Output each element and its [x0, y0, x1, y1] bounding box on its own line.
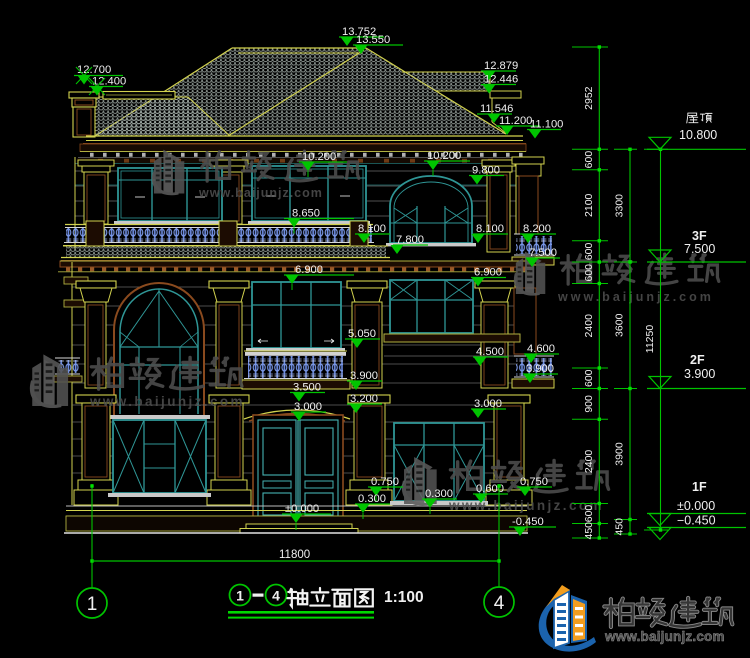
svg-text:2400: 2400 — [583, 450, 595, 474]
svg-text:www.baijunjz.com: www.baijunjz.com — [198, 186, 323, 200]
svg-text:13.550: 13.550 — [356, 34, 390, 46]
svg-text:1: 1 — [87, 594, 98, 615]
svg-text:−0.450: −0.450 — [677, 514, 716, 528]
svg-text:8.650: 8.650 — [292, 208, 320, 220]
svg-text:8.100: 8.100 — [476, 223, 504, 235]
svg-text:3.900: 3.900 — [526, 363, 554, 375]
svg-text:2400: 2400 — [583, 314, 595, 338]
svg-text:900: 900 — [583, 395, 595, 413]
svg-text:0.750: 0.750 — [371, 476, 399, 488]
svg-text:3.200: 3.200 — [350, 393, 378, 405]
svg-text:2952: 2952 — [583, 86, 595, 110]
svg-text:450: 450 — [614, 518, 626, 536]
svg-text:1:100: 1:100 — [384, 589, 424, 606]
svg-text:3.000: 3.000 — [294, 401, 322, 413]
svg-text:3.500: 3.500 — [293, 382, 321, 394]
svg-text:3.000: 3.000 — [474, 398, 502, 410]
svg-text:4.500: 4.500 — [476, 346, 504, 358]
svg-text:4: 4 — [272, 588, 280, 604]
svg-text:12.446: 12.446 — [484, 74, 518, 86]
svg-text:1: 1 — [236, 588, 244, 604]
svg-text:3.900: 3.900 — [350, 370, 378, 382]
svg-text:6.900: 6.900 — [474, 267, 502, 279]
svg-text:1F: 1F — [692, 480, 707, 494]
svg-text:8.100: 8.100 — [358, 223, 386, 235]
svg-text:600: 600 — [583, 242, 595, 260]
svg-text:600: 600 — [583, 369, 595, 387]
svg-text:0.300: 0.300 — [425, 488, 453, 500]
svg-text:±0.000: ±0.000 — [285, 503, 319, 515]
svg-text:9.800: 9.800 — [472, 165, 500, 177]
svg-text:10.200: 10.200 — [302, 151, 336, 163]
svg-text:3600: 3600 — [614, 313, 626, 337]
svg-text:11800: 11800 — [279, 549, 310, 561]
svg-text:www.baijunjz.com: www.baijunjz.com — [89, 394, 245, 409]
svg-text:6.900: 6.900 — [295, 264, 323, 276]
svg-text:4.600: 4.600 — [527, 343, 555, 355]
svg-text:3300: 3300 — [614, 194, 626, 218]
svg-text:10.200: 10.200 — [427, 150, 461, 162]
svg-text:11.200: 11.200 — [499, 115, 532, 127]
svg-text:600: 600 — [583, 505, 595, 523]
svg-text:www.baijunjz.com: www.baijunjz.com — [604, 629, 725, 644]
svg-text:12.879: 12.879 — [484, 60, 518, 72]
svg-text:10.800: 10.800 — [679, 128, 717, 142]
svg-text:www.baijunjz.com: www.baijunjz.com — [448, 498, 604, 513]
svg-text:450: 450 — [583, 522, 595, 540]
svg-text:3900: 3900 — [614, 442, 626, 466]
svg-text:2100: 2100 — [583, 193, 595, 217]
svg-text:-0.450: -0.450 — [512, 516, 544, 528]
svg-text:11250: 11250 — [644, 325, 656, 354]
svg-text:4: 4 — [494, 593, 505, 614]
svg-text:5.050: 5.050 — [348, 328, 376, 340]
svg-text:11.546: 11.546 — [480, 103, 513, 115]
svg-text:±0.000: ±0.000 — [677, 499, 715, 513]
svg-text:0.750: 0.750 — [520, 476, 548, 488]
svg-text:7.500: 7.500 — [684, 242, 715, 256]
svg-text:8.200: 8.200 — [523, 223, 551, 235]
svg-text:3F: 3F — [692, 229, 707, 243]
svg-text:3.900: 3.900 — [684, 367, 715, 381]
svg-text:2F: 2F — [690, 353, 705, 367]
svg-text:0.300: 0.300 — [358, 493, 386, 505]
svg-text:600: 600 — [583, 151, 595, 169]
svg-text:www.baijunjz.com: www.baijunjz.com — [557, 290, 714, 304]
svg-text:11.100: 11.100 — [530, 119, 563, 131]
svg-text:7.800: 7.800 — [396, 234, 424, 246]
svg-text:7.500: 7.500 — [529, 247, 557, 259]
svg-text:600: 600 — [583, 264, 595, 282]
